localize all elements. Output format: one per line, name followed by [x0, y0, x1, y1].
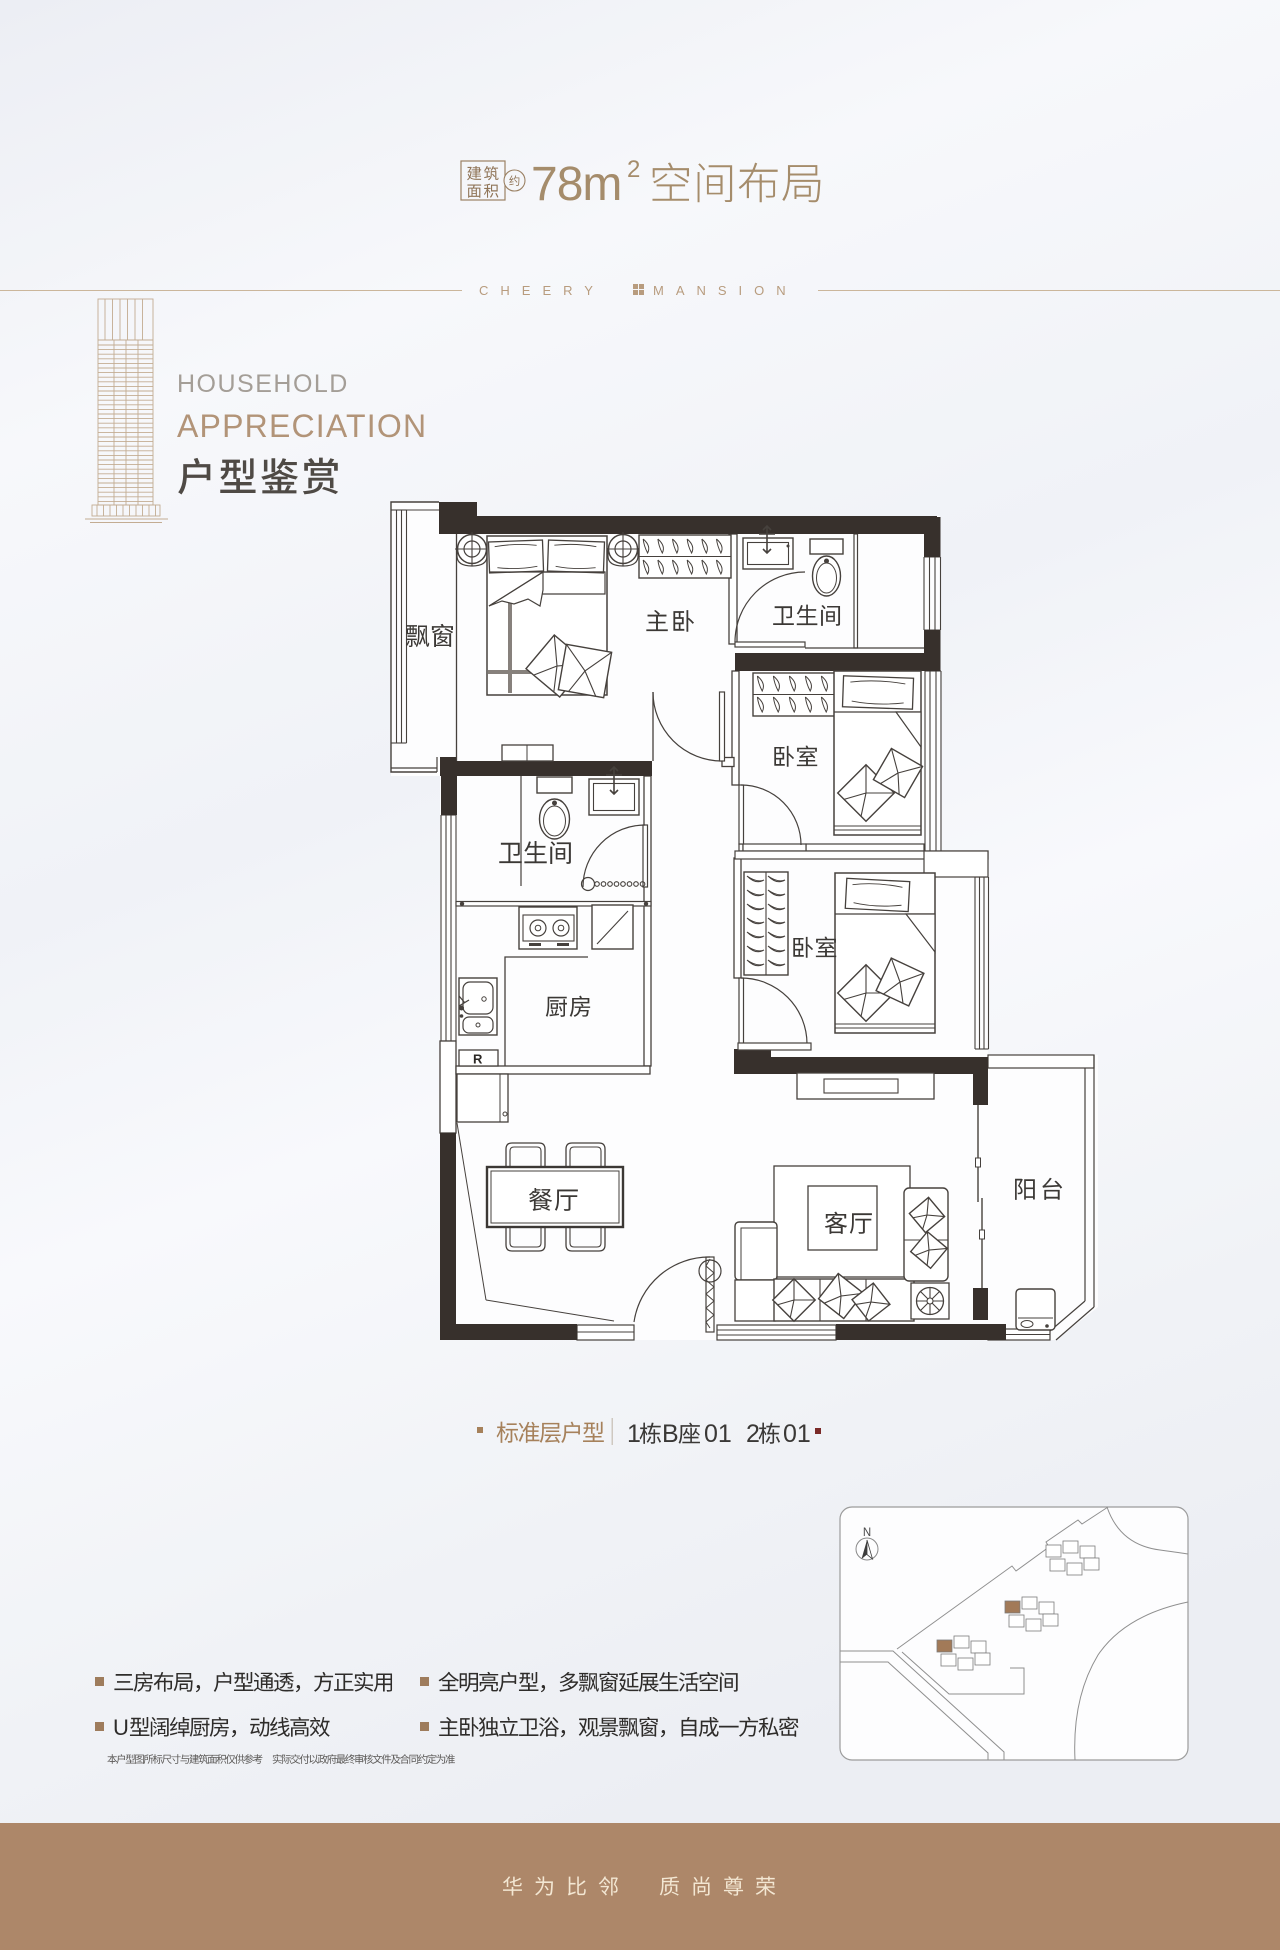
svg-text:R: R: [473, 1052, 483, 1067]
svg-text:B: B: [662, 1420, 679, 1448]
svg-text:MANSION: MANSION: [653, 283, 798, 298]
svg-text:1: 1: [627, 1420, 641, 1448]
svg-text:CHEERY: CHEERY: [479, 283, 605, 298]
svg-text:78m: 78m: [531, 158, 621, 211]
svg-text:01: 01: [704, 1420, 732, 1448]
svg-text:01: 01: [783, 1420, 811, 1448]
svg-text:U: U: [113, 1715, 129, 1740]
svg-text:2: 2: [746, 1420, 760, 1448]
svg-text:N: N: [863, 1527, 871, 1539]
svg-text:HOUSEHOLD: HOUSEHOLD: [177, 370, 349, 398]
svg-text:APPRECIATION: APPRECIATION: [177, 408, 427, 444]
svg-text:2: 2: [627, 156, 640, 183]
